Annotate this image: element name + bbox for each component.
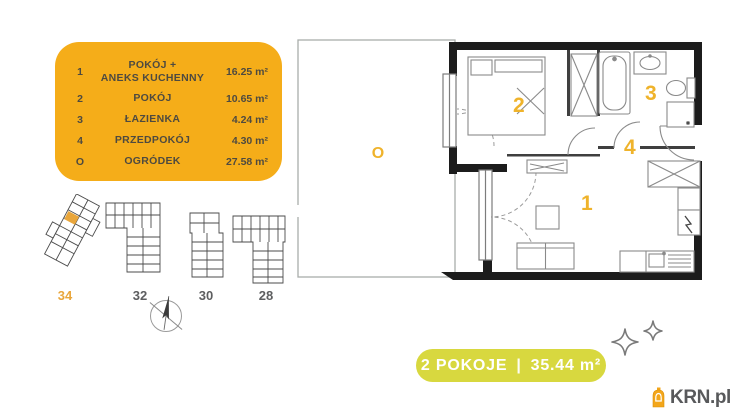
summary-separator: | (516, 357, 521, 375)
room-legend-card: 1 POKÓJ + ANEKS KUCHENNY 16.25 m² 2 POKÓ… (55, 42, 282, 181)
garden-label: O (372, 145, 384, 162)
legend-room-name: PRZEDPOKÓJ (93, 134, 212, 147)
krn-logo: KRN.pl (650, 387, 731, 409)
legend-room-number: O (67, 156, 93, 168)
sparkles-icon (600, 318, 670, 358)
legend-row: 1 POKÓJ + ANEKS KUCHENNY 16.25 m² (67, 55, 268, 88)
building-30 (190, 213, 223, 277)
summary-rooms: 2 POKOJE (421, 357, 507, 375)
legend-room-number: 2 (67, 93, 93, 105)
livingroom-kitchen-furniture (517, 160, 700, 272)
fridge (678, 188, 700, 210)
legend-room-name: POKÓJ (93, 92, 212, 105)
pillow (495, 60, 542, 72)
summary-area: 35.44 m² (531, 357, 601, 375)
legend-room-area: 4.30 m² (212, 135, 268, 147)
legend-room-area: 27.58 m² (212, 156, 268, 168)
building-30-label: 30 (190, 288, 222, 303)
legend-room-number: 3 (67, 114, 93, 126)
coffee-table (536, 206, 559, 229)
hall-label: 4 (624, 136, 636, 159)
room1-label: 1 (581, 192, 593, 215)
legend-row: 2 POKÓJ 10.65 m² (67, 88, 268, 109)
building-28-label: 28 (250, 288, 282, 303)
legend-room-name: OGRÓDEK (93, 155, 212, 168)
legend-room-area: 4.24 m² (212, 114, 268, 126)
bedroom-furniture (468, 54, 597, 135)
legend-row: O OGRÓDEK 27.58 m² (67, 151, 268, 172)
apartment-summary-badge: 2 POKOJE | 35.44 m² (416, 349, 606, 382)
floorplan-page: 1 POKÓJ + ANEKS KUCHENNY 16.25 m² 2 POKÓ… (0, 0, 740, 420)
kitchen-sink (649, 254, 664, 267)
legend-row: 4 PRZEDPOKÓJ 4.30 m² (67, 130, 268, 151)
toilet (667, 81, 686, 96)
apartment-floor-plan: 2 1 3 4 O (285, 28, 715, 290)
site-plan-buildings (40, 194, 290, 290)
building-28 (233, 216, 285, 283)
legend-row: 3 ŁAZIENKA 4.24 m² (67, 109, 268, 130)
legend-room-name: ŁAZIENKA (93, 113, 212, 126)
legend-room-area: 10.65 m² (212, 93, 268, 105)
pillow (471, 60, 492, 75)
legend-room-name: POKÓJ + ANEKS KUCHENNY (93, 59, 212, 84)
krn-logo-text: KRN.pl (670, 387, 731, 409)
legend-room-area: 16.25 m² (212, 66, 268, 78)
krn-house-icon (650, 387, 667, 409)
legend-room-number: 4 (67, 135, 93, 147)
toilet-tank (687, 78, 695, 98)
room2-label: 2 (513, 94, 525, 117)
building-34 (40, 194, 107, 270)
building-34-label: 34 (49, 288, 81, 303)
electrical-cabinet (678, 210, 700, 235)
building-32 (106, 203, 160, 272)
compass-icon (138, 288, 194, 344)
legend-room-number: 1 (67, 66, 93, 78)
entry-opening (693, 125, 703, 161)
bathroom-label: 3 (645, 82, 657, 105)
